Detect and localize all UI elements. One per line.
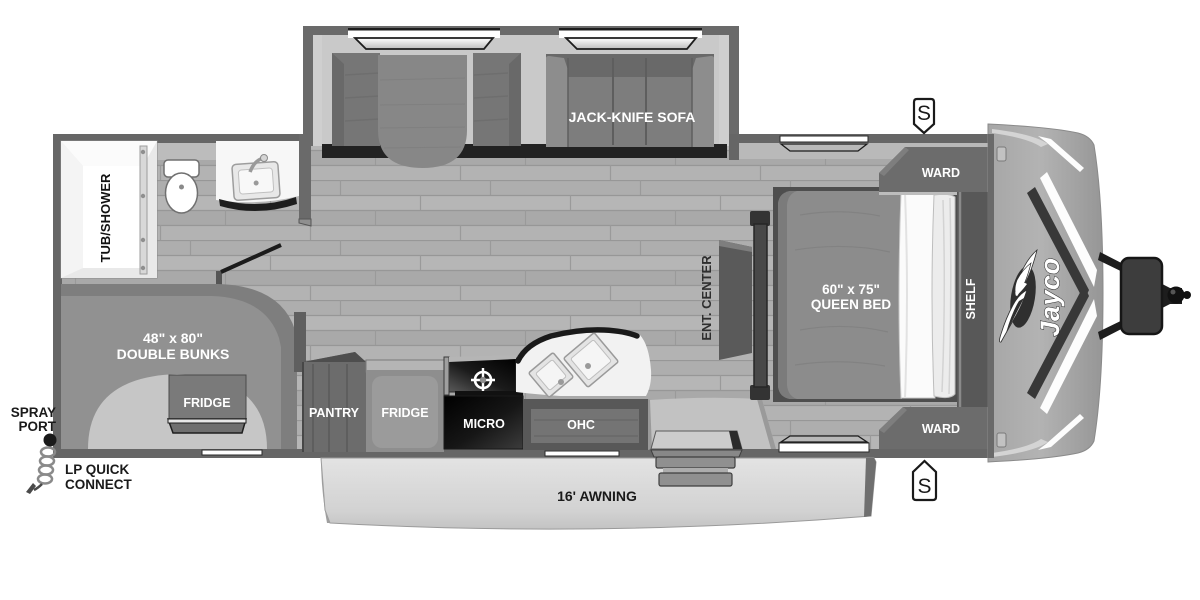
svg-text:TUB/SHOWER: TUB/SHOWER	[98, 173, 113, 262]
svg-text:SPRAY: SPRAY	[11, 405, 56, 420]
svg-text:ENT. CENTER: ENT. CENTER	[699, 255, 714, 341]
svg-text:PANTRY: PANTRY	[309, 406, 360, 420]
svg-text:CONNECT: CONNECT	[65, 477, 133, 492]
svg-text:FRIDGE: FRIDGE	[183, 396, 230, 410]
svg-text:WARD: WARD	[922, 422, 960, 436]
svg-text:LP QUICK: LP QUICK	[65, 462, 130, 477]
svg-text:16' AWNING: 16' AWNING	[557, 488, 637, 504]
svg-text:OHC: OHC	[567, 418, 595, 432]
svg-text:PORT: PORT	[18, 419, 56, 434]
svg-text:SHELF: SHELF	[964, 278, 978, 319]
svg-text:MICRO: MICRO	[463, 417, 505, 431]
svg-text:JACK-KNIFE SOFA: JACK-KNIFE SOFA	[569, 109, 696, 125]
svg-text:S: S	[917, 475, 931, 498]
svg-text:48" x 80": 48" x 80"	[143, 330, 203, 346]
svg-text:QUEEN BED: QUEEN BED	[811, 297, 892, 312]
svg-text:FRIDGE: FRIDGE	[381, 406, 428, 420]
svg-text:DOUBLE BUNKS: DOUBLE BUNKS	[117, 346, 230, 362]
svg-text:Jayco: Jayco	[1035, 257, 1065, 336]
svg-text:60" x 75": 60" x 75"	[822, 282, 880, 297]
svg-text:WARD: WARD	[922, 166, 960, 180]
svg-text:S: S	[917, 102, 931, 125]
